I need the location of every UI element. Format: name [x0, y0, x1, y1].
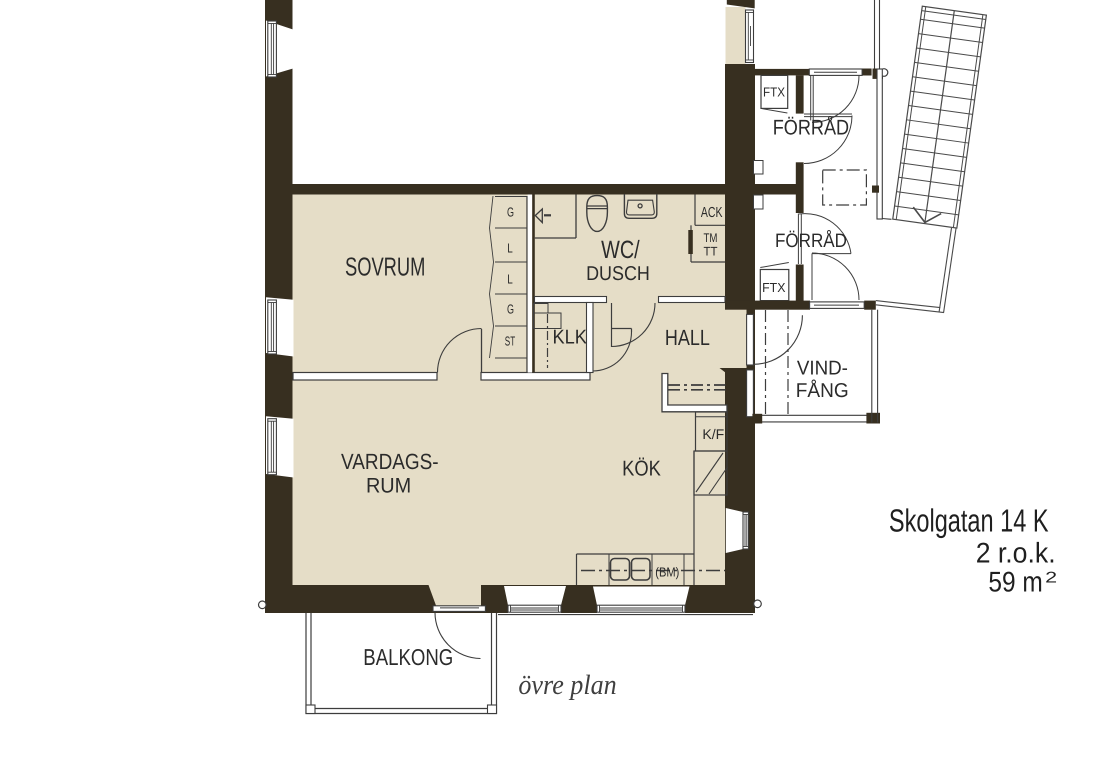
svg-text:DUSCH: DUSCH: [586, 263, 650, 285]
svg-text:ST: ST: [505, 334, 515, 349]
svg-text:2: 2: [1045, 570, 1057, 587]
svg-text:TM: TM: [704, 231, 718, 245]
svg-text:WC/: WC/: [601, 236, 640, 264]
svg-text:L: L: [507, 241, 513, 256]
svg-text:FÖRRÅD: FÖRRÅD: [773, 116, 849, 140]
svg-text:FTX: FTX: [763, 85, 785, 100]
svg-text:HALL: HALL: [665, 325, 710, 350]
svg-text:L: L: [507, 272, 513, 287]
svg-text:SOVRUM: SOVRUM: [345, 252, 425, 282]
svg-text:G: G: [507, 205, 514, 220]
svg-text:(BM): (BM): [655, 565, 679, 580]
svg-text:59 m: 59 m: [988, 567, 1042, 599]
svg-text:TT: TT: [704, 244, 718, 258]
svg-text:VIND-: VIND-: [797, 358, 848, 380]
svg-text:övre plan: övre plan: [518, 670, 616, 701]
svg-text:FÖRRÅD: FÖRRÅD: [775, 229, 847, 252]
svg-text:Skolgatan 14 K: Skolgatan 14 K: [889, 503, 1049, 539]
svg-text:FTX: FTX: [762, 280, 786, 295]
svg-text:2 r.o.k.: 2 r.o.k.: [976, 538, 1056, 570]
svg-text:K/F: K/F: [702, 426, 724, 442]
svg-text:BALKONG: BALKONG: [363, 644, 453, 670]
svg-text:ACK: ACK: [701, 205, 723, 221]
svg-text:VARDAGS-: VARDAGS-: [341, 449, 439, 474]
svg-text:RUM: RUM: [366, 474, 411, 497]
svg-text:KÖK: KÖK: [622, 456, 661, 480]
svg-text:G: G: [507, 302, 514, 317]
svg-text:FÅNG: FÅNG: [796, 379, 849, 402]
